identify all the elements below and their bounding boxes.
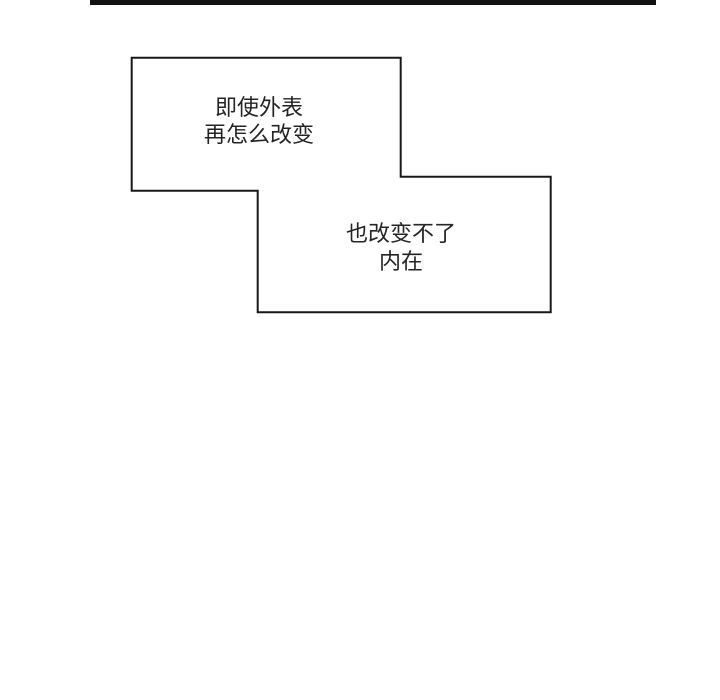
comic-page: 即使外表 再怎么改变 也改变不了 内在 — [0, 0, 720, 700]
caption-box-2-text: 也改变不了 内在 — [255, 181, 547, 316]
caption-line: 内在 — [379, 249, 423, 277]
caption-line: 再怎么改变 — [204, 122, 314, 149]
caption-line: 也改变不了 — [346, 221, 456, 249]
caption-line: 即使外表 — [215, 95, 303, 122]
caption-box-1-text: 即使外表 再怎么改变 — [125, 56, 393, 188]
